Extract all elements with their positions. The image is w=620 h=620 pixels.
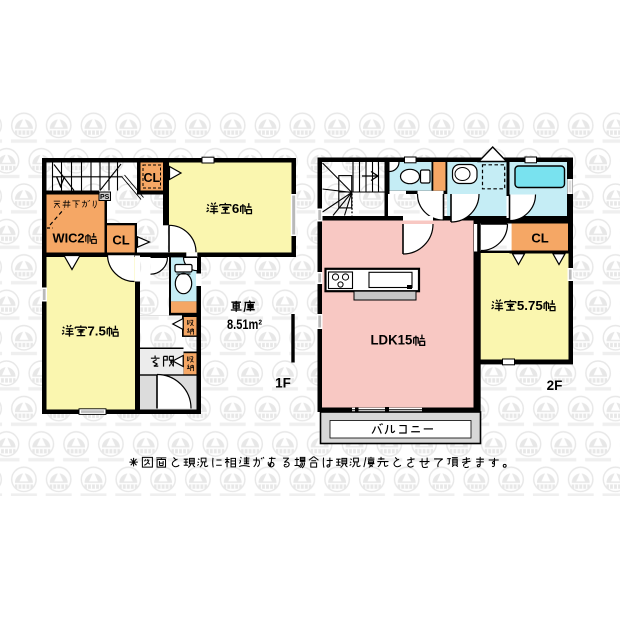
svg-text:LDK15: LDK15	[371, 333, 413, 348]
svg-text:CL: CL	[112, 233, 129, 248]
svg-text:WIC2: WIC2	[53, 231, 85, 246]
svg-text:CL: CL	[143, 171, 160, 185]
svg-text:7.5: 7.5	[87, 323, 106, 338]
svg-text:8.51m²: 8.51m²	[227, 317, 262, 332]
svg-text:2F: 2F	[547, 378, 563, 393]
svg-text:CL: CL	[531, 231, 548, 246]
svg-text:6: 6	[232, 201, 239, 216]
svg-text:PS: PS	[100, 194, 110, 201]
svg-text:1F: 1F	[275, 376, 291, 391]
svg-text:5.75: 5.75	[517, 298, 543, 313]
